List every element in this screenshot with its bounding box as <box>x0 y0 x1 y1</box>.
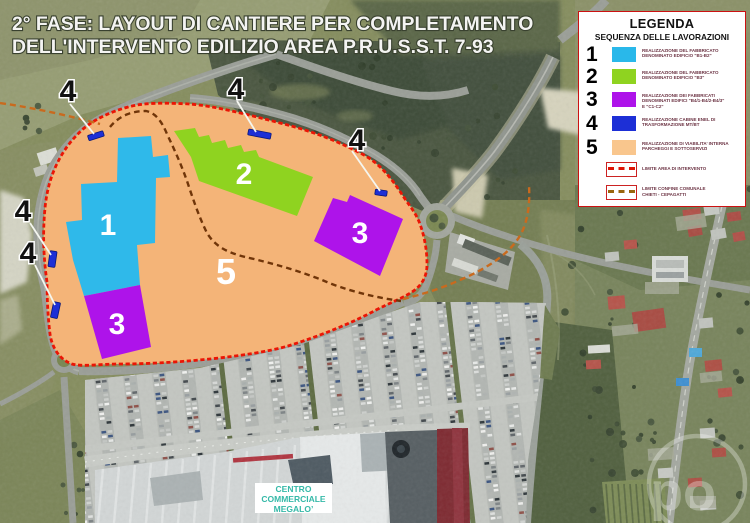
svg-text:3: 3 <box>109 308 126 341</box>
svg-text:4: 4 <box>228 73 245 106</box>
svg-text:1: 1 <box>100 209 117 242</box>
svg-text:MEGALO’: MEGALO’ <box>274 504 314 514</box>
svg-text:2: 2 <box>236 158 253 191</box>
svg-text:5: 5 <box>216 251 236 292</box>
svg-text:4: 4 <box>349 124 366 157</box>
svg-text:4: 4 <box>60 75 77 108</box>
svg-text:3: 3 <box>352 217 369 250</box>
svg-text:DELL'INTERVENTO EDILIZIO AREA: DELL'INTERVENTO EDILIZIO AREA P.R.U.S.S.… <box>12 36 494 58</box>
svg-text:CENTRO: CENTRO <box>276 484 312 494</box>
svg-text:COMMERCIALE: COMMERCIALE <box>261 494 326 504</box>
svg-text:4: 4 <box>15 195 32 228</box>
svg-text:4: 4 <box>20 237 37 270</box>
svg-text:po: po <box>650 462 716 522</box>
svg-text:2° FASE: LAYOUT DI CANTIERE PE: 2° FASE: LAYOUT DI CANTIERE PER COMPLETA… <box>12 13 533 35</box>
